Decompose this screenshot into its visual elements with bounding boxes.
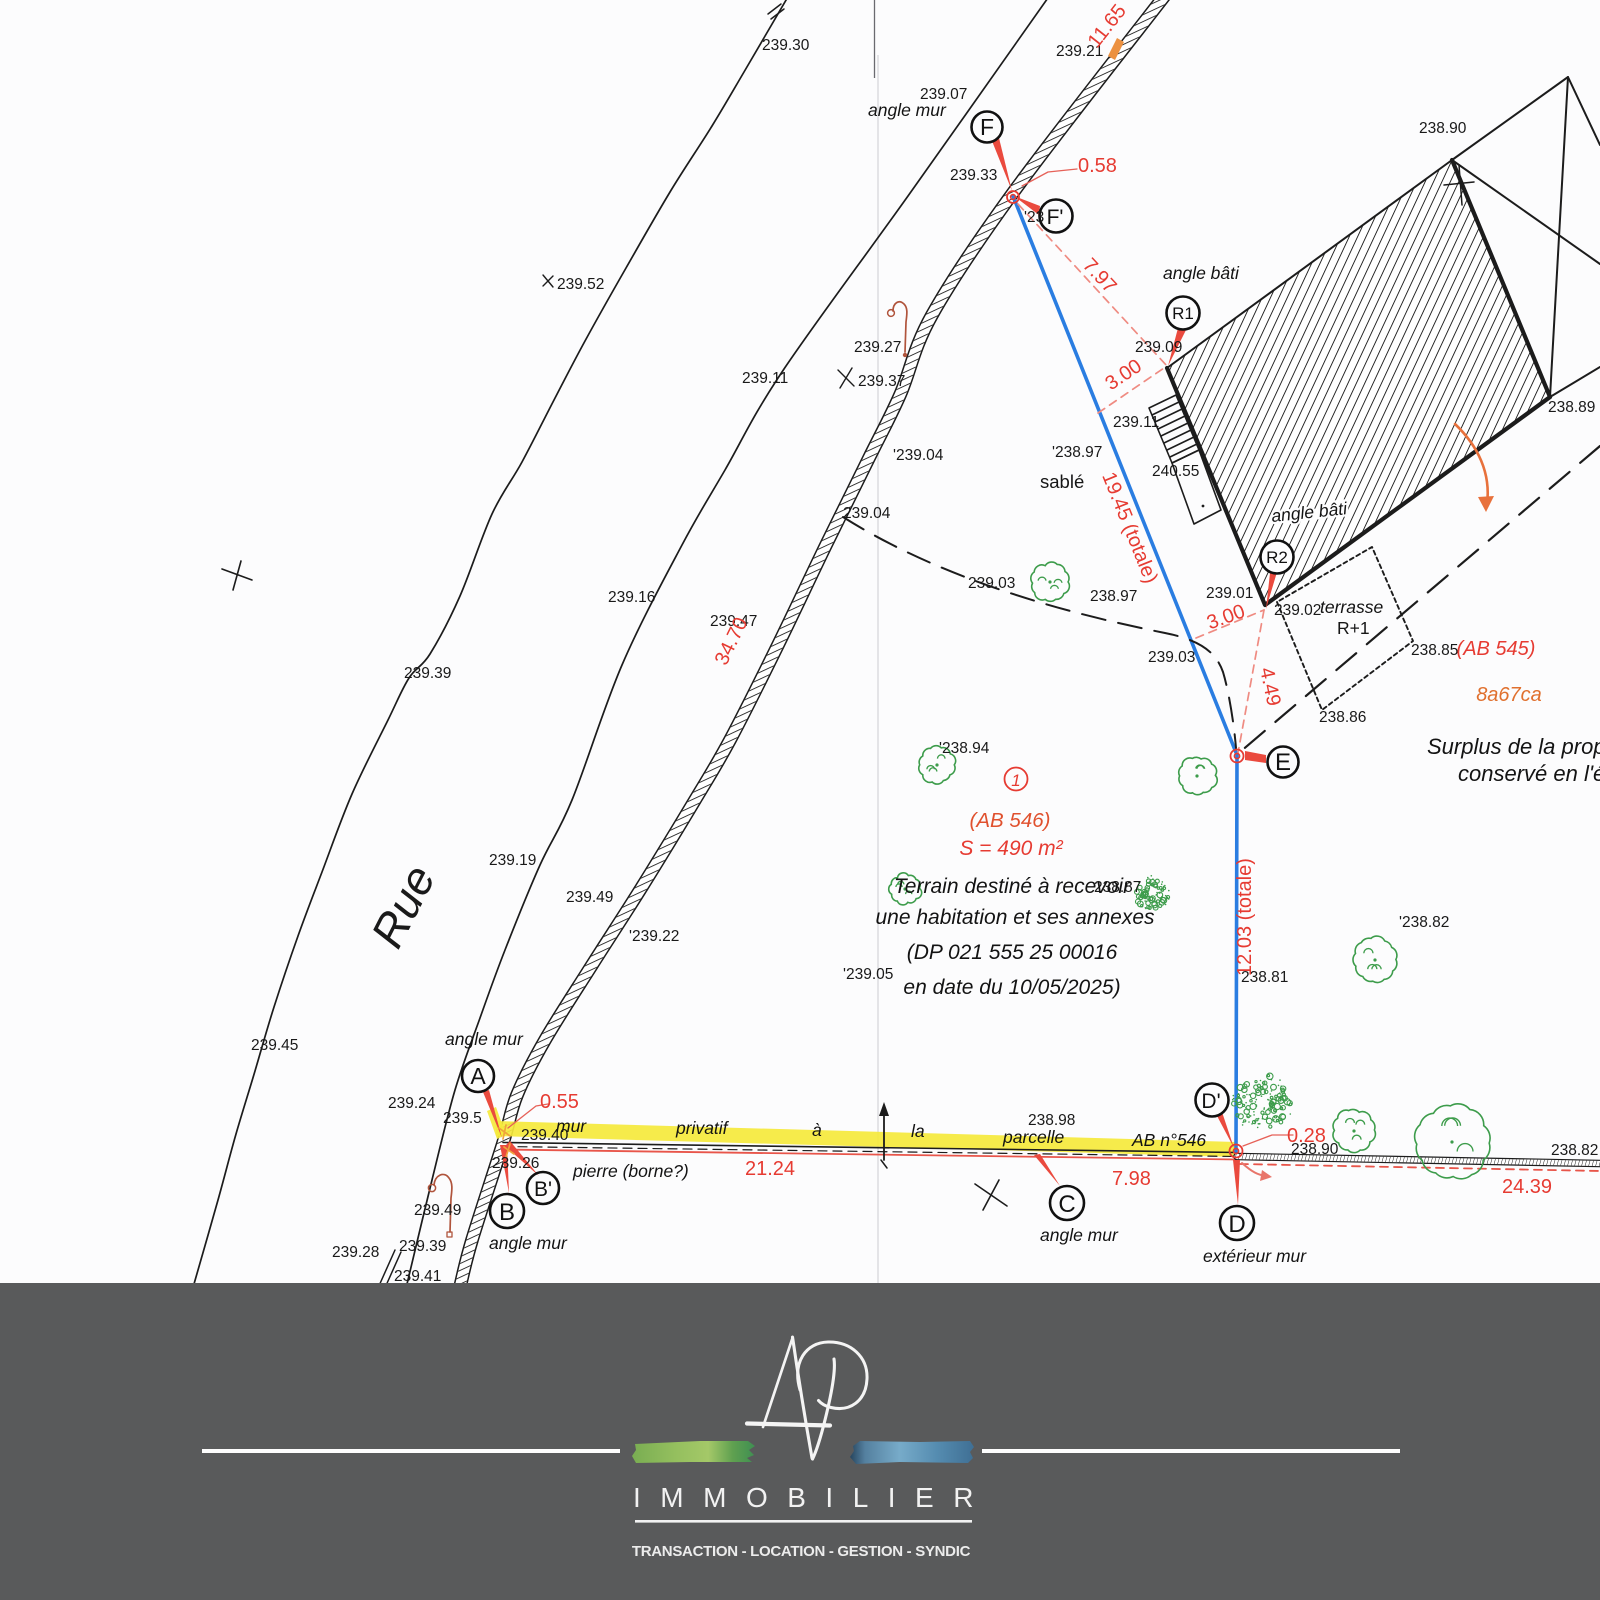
svg-text:239.03: 239.03 [968, 575, 1015, 592]
svg-text:D: D [1228, 1211, 1245, 1238]
svg-text:(AB 545): (AB 545) [1457, 638, 1536, 660]
svg-text:S = 490 m²: S = 490 m² [959, 837, 1063, 860]
svg-text:0.55: 0.55 [540, 1091, 579, 1113]
svg-text:'239.04: '239.04 [893, 447, 944, 464]
svg-text:(AB 546): (AB 546) [970, 809, 1051, 832]
svg-text:239.02: 239.02 [1274, 602, 1321, 619]
svg-text:0.28: 0.28 [1287, 1125, 1326, 1147]
svg-text:A: A [470, 1063, 486, 1089]
svg-text:239.16: 239.16 [608, 589, 655, 606]
svg-text:238.82: 238.82 [1551, 1142, 1598, 1159]
svg-text:'23: '23 [1024, 209, 1044, 226]
svg-text:la: la [911, 1121, 925, 1141]
svg-text:Surplus de la propriété: Surplus de la propriété [1427, 734, 1600, 759]
svg-text:240.55: 240.55 [1152, 463, 1199, 480]
svg-text:12.03 (totale): 12.03 (totale) [1234, 858, 1256, 976]
svg-text:conservé en l'état: conservé en l'état [1458, 761, 1600, 786]
svg-text:238.89: 238.89 [1548, 399, 1595, 416]
svg-text:terrasse: terrasse [1320, 597, 1383, 617]
svg-text:AB n°546: AB n°546 [1131, 1130, 1206, 1150]
svg-text:239.33: 239.33 [950, 167, 997, 184]
svg-text:TRANSACTION - LOCATION - GESTI: TRANSACTION - LOCATION - GESTION - SYNDI… [632, 1543, 971, 1560]
svg-text:239.11: 239.11 [742, 370, 788, 387]
svg-text:239.03: 239.03 [1148, 649, 1195, 666]
svg-text:angle bâti: angle bâti [1163, 263, 1240, 283]
svg-text:Terrain destiné à recevoir: Terrain destiné à recevoir [894, 875, 1131, 898]
svg-text:angle mur: angle mur [489, 1233, 568, 1253]
svg-text:238.97: 238.97 [1090, 588, 1137, 605]
svg-text:239.26: 239.26 [492, 1155, 539, 1172]
svg-text:239.5: 239.5 [443, 1110, 482, 1127]
svg-text:en date du 10/05/2025): en date du 10/05/2025) [903, 976, 1120, 999]
svg-text:1: 1 [1011, 771, 1020, 790]
svg-text:R1: R1 [1172, 304, 1194, 323]
svg-text:239.01: 239.01 [1206, 585, 1253, 602]
svg-text:à: à [812, 1120, 822, 1140]
svg-text:IMMOBILIER: IMMOBILIER [633, 1482, 993, 1513]
svg-text:239.52: 239.52 [557, 276, 604, 293]
svg-text:'238.82: '238.82 [1399, 914, 1449, 931]
svg-text:'239.05: '239.05 [843, 966, 893, 983]
svg-text:239.49: 239.49 [414, 1202, 461, 1219]
svg-text:238.85: 238.85 [1411, 642, 1458, 659]
svg-text:mur: mur [556, 1116, 587, 1136]
svg-text:D': D' [1201, 1090, 1220, 1113]
svg-text:239.04: 239.04 [843, 505, 891, 522]
svg-text:24.39: 24.39 [1502, 1176, 1552, 1198]
svg-text:F: F [980, 114, 994, 140]
svg-text:sablé: sablé [1040, 471, 1084, 492]
svg-text:239.45: 239.45 [251, 1037, 298, 1054]
svg-text:7.98: 7.98 [1112, 1168, 1151, 1190]
svg-text:239.39: 239.39 [404, 665, 451, 682]
svg-text:0.58: 0.58 [1078, 155, 1117, 177]
svg-text:R+1: R+1 [1337, 618, 1370, 638]
svg-text:F': F' [1047, 206, 1064, 229]
svg-text:extérieur mur: extérieur mur [1203, 1246, 1307, 1266]
svg-text:B: B [499, 1199, 515, 1226]
svg-text:238.86: 238.86 [1319, 709, 1366, 726]
svg-text:C: C [1058, 1191, 1075, 1218]
svg-text:'238.94: '238.94 [939, 740, 990, 757]
svg-text:angle mur: angle mur [868, 100, 947, 120]
svg-text:239.09: 239.09 [1135, 339, 1182, 356]
svg-text:R2: R2 [1266, 548, 1288, 567]
svg-text:239.24: 239.24 [388, 1095, 436, 1112]
svg-text:pierre (borne?): pierre (borne?) [572, 1161, 689, 1181]
svg-text:privatif: privatif [675, 1118, 730, 1138]
svg-text:239.37: 239.37 [858, 373, 905, 390]
svg-text:8a67ca: 8a67ca [1476, 684, 1542, 706]
svg-text:(DP 021 555 25 00016: (DP 021 555 25 00016 [907, 941, 1118, 964]
svg-text:239.11: 239.11 [1113, 414, 1159, 431]
svg-text:239.27: 239.27 [854, 339, 901, 356]
svg-text:'238.97: '238.97 [1052, 444, 1102, 461]
svg-text:239.39: 239.39 [399, 1238, 446, 1255]
svg-text:B': B' [534, 1178, 552, 1201]
svg-text:E: E [1275, 749, 1291, 776]
svg-text:angle mur: angle mur [1040, 1225, 1119, 1245]
svg-text:239.30: 239.30 [762, 37, 810, 54]
svg-text:239.19: 239.19 [489, 852, 536, 869]
svg-text:239.41: 239.41 [394, 1268, 441, 1285]
svg-text:angle mur: angle mur [445, 1029, 524, 1049]
svg-text:239.49: 239.49 [566, 889, 613, 906]
svg-text:238.90: 238.90 [1419, 120, 1467, 137]
svg-text:parcelle: parcelle [1002, 1127, 1065, 1147]
svg-text:21.24: 21.24 [745, 1158, 795, 1180]
svg-text:239.28: 239.28 [332, 1244, 379, 1261]
svg-text:une habitation et ses annexes: une habitation et ses annexes [875, 906, 1155, 929]
svg-text:'239.22: '239.22 [629, 928, 679, 945]
